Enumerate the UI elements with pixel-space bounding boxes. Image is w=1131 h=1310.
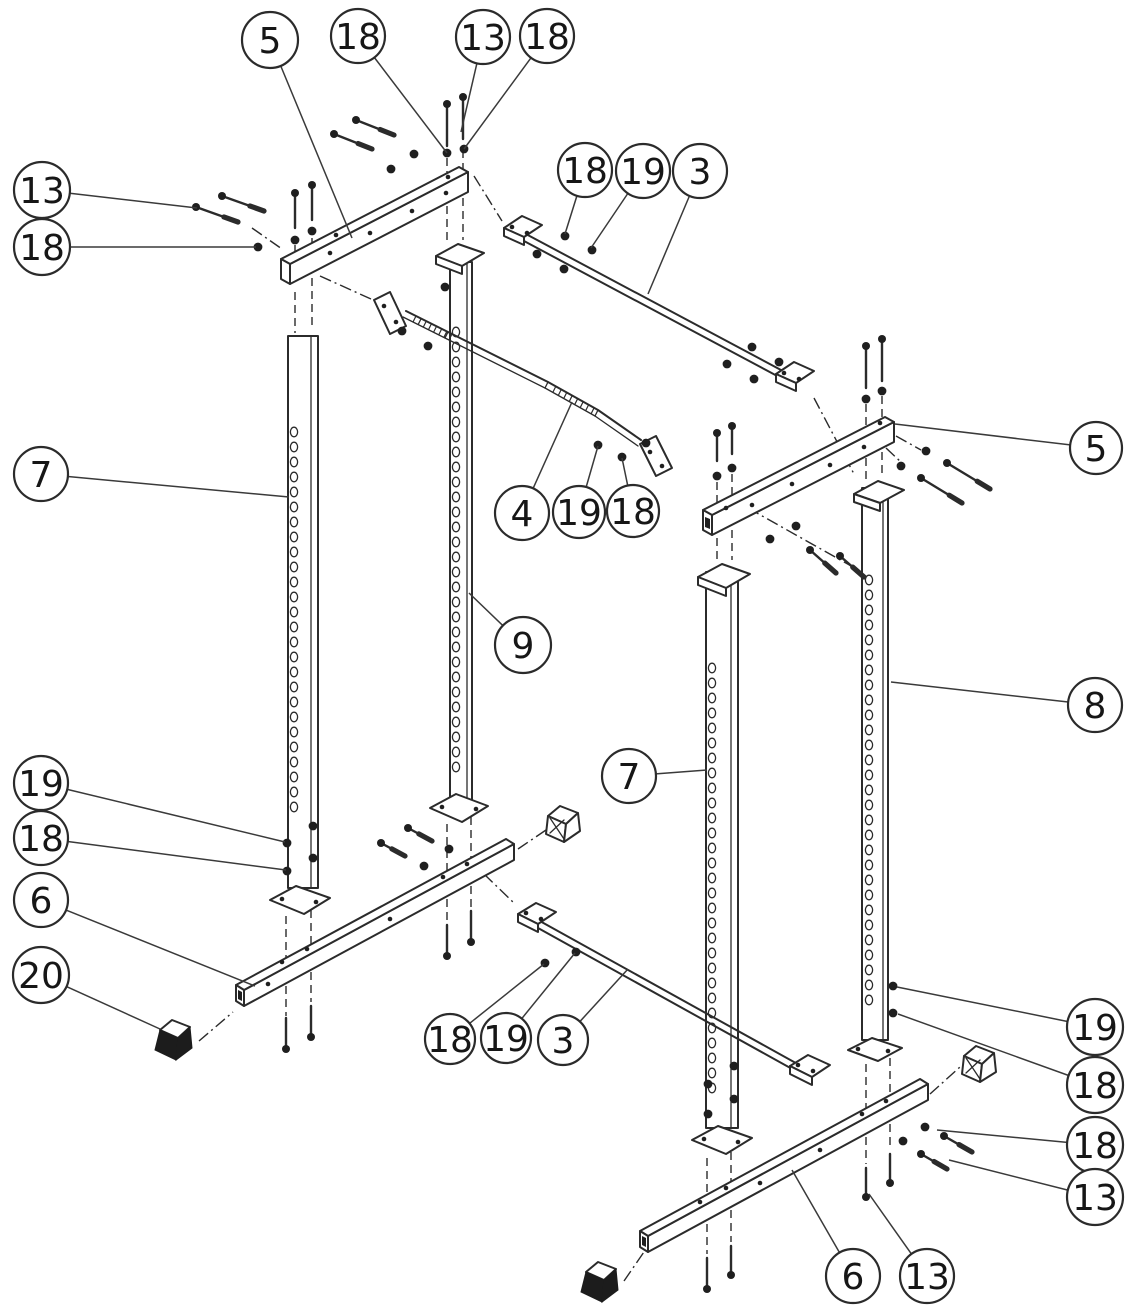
callout-number: 18	[562, 151, 608, 192]
callout-leader-line	[66, 910, 255, 986]
callout-13: 13	[949, 1160, 1123, 1225]
bolt-hole-dot	[648, 450, 653, 455]
callout-number: 13	[460, 18, 506, 59]
bolt-hole-dot	[702, 1137, 707, 1142]
bolt-hole-dot	[524, 911, 529, 916]
callout-leader-line	[281, 66, 352, 238]
callout-number: 5	[259, 21, 282, 62]
washer	[922, 447, 931, 456]
callout-18: 18	[14, 811, 286, 870]
axis-centerline	[624, 1249, 646, 1281]
callout-leader-line	[586, 446, 598, 487]
callout-18: 18	[14, 219, 256, 275]
bolt	[943, 459, 990, 489]
bolt-hole-dot	[410, 209, 415, 214]
bolt-hole-dot	[388, 917, 393, 922]
bolt-hole-dot	[280, 960, 285, 965]
callout-leader-line	[895, 424, 1070, 445]
washer	[878, 387, 887, 396]
washer	[309, 822, 318, 831]
callout-number: 5	[1085, 429, 1108, 470]
bolt	[330, 130, 372, 149]
washer	[899, 1137, 908, 1146]
callout-number: 19	[620, 152, 666, 193]
washer	[792, 522, 801, 531]
bolt-hole-dot	[811, 1069, 816, 1074]
foot-wedge-rear-right	[962, 1046, 996, 1082]
bolt-hole-dot	[474, 807, 479, 812]
axis-centerline	[886, 448, 902, 463]
callout-number: 13	[904, 1257, 950, 1298]
bolt	[806, 546, 836, 573]
bolt-hole-dot	[465, 862, 470, 867]
callout-number: 13	[1072, 1178, 1118, 1219]
callout-19: 19	[897, 987, 1123, 1055]
washer	[750, 375, 759, 384]
washer	[766, 535, 775, 544]
callout-number: 6	[842, 1257, 865, 1298]
bolt-hole-dot	[328, 251, 333, 256]
bolt-hole-dot	[660, 464, 665, 469]
bolt-hole-dot	[886, 1049, 891, 1054]
callout-number: 19	[483, 1019, 529, 1060]
washer	[560, 265, 569, 274]
bolt-hole-dot	[539, 917, 544, 922]
washer	[713, 472, 722, 481]
assembly-diagram-page: 5181318181931318574191898719186201819319…	[0, 0, 1131, 1310]
bolt	[727, 1246, 735, 1279]
callout-number: 19	[1072, 1008, 1118, 1049]
callout-7: 7	[602, 749, 707, 803]
callout-18: 18	[558, 143, 612, 234]
base-rail-left	[236, 839, 514, 1006]
axis-centerline	[474, 176, 502, 221]
axis-centerline	[896, 436, 921, 450]
bolt-hole-dot	[510, 225, 515, 230]
bolt	[728, 422, 736, 454]
callout-7: 7	[14, 447, 289, 501]
exploded-view-diagram: 5181318181931318574191898719186201819319…	[0, 0, 1131, 1310]
bolt-hole-dot	[750, 503, 755, 508]
bolt	[886, 1154, 894, 1187]
washer	[291, 236, 300, 245]
callout-number: 7	[618, 757, 641, 798]
callout-leader-line	[66, 987, 160, 1029]
washer	[398, 327, 407, 336]
bolt	[467, 911, 475, 946]
bolt	[218, 192, 264, 211]
callout-leader-line	[622, 458, 628, 486]
callout-number: 18	[335, 17, 381, 58]
callout-number: 6	[30, 881, 53, 922]
bolt-hole-dot	[862, 445, 867, 450]
washer	[889, 1009, 898, 1018]
callout-number: 18	[610, 492, 656, 533]
bolt-hole-dot	[878, 421, 883, 426]
bolt-hole-dot	[394, 320, 399, 325]
callout-leader-line	[937, 1130, 1067, 1142]
bolt	[917, 474, 962, 503]
bolt-hole-dot	[368, 231, 373, 236]
rear-top-crossbar	[504, 216, 814, 391]
callout-leader-line	[869, 1194, 911, 1254]
bolt	[878, 335, 886, 381]
bolt	[917, 1150, 947, 1169]
washer	[533, 250, 542, 259]
bolt-hole-dot	[444, 191, 449, 196]
bolt-hole-dot	[790, 482, 795, 487]
washer	[309, 854, 318, 863]
callout-leader-line	[464, 58, 531, 149]
bolt	[352, 116, 394, 135]
callout-leader-line	[533, 402, 572, 488]
washer	[642, 439, 651, 448]
washer	[704, 1080, 713, 1089]
bolt-hole-dot	[884, 1099, 889, 1104]
callout-leader-line	[68, 841, 286, 870]
post-hole-chains	[290, 327, 872, 1093]
bolt-hole-dot	[440, 805, 445, 810]
axis-centerline	[930, 1067, 960, 1094]
callout-leader-line	[469, 593, 503, 626]
bolt	[377, 839, 405, 856]
washer	[441, 283, 450, 292]
callout-leader-line	[374, 57, 447, 153]
callout-3: 3	[538, 969, 628, 1065]
foot-wedge-rear-left	[546, 806, 580, 842]
post-right-front	[692, 564, 752, 1154]
bolt	[459, 93, 467, 139]
bolt-hole-dot	[796, 1063, 801, 1068]
bolt-hole-dot	[314, 900, 319, 905]
callout-number: 13	[19, 171, 65, 212]
callout-leader-line	[648, 196, 689, 294]
pullup-bar	[374, 292, 672, 476]
bolt-hole-dot	[441, 875, 446, 880]
washer	[730, 1062, 739, 1071]
callout-9: 9	[469, 593, 551, 673]
callout-number: 9	[512, 626, 535, 667]
callout-number: 18	[524, 17, 570, 58]
callout-13: 13	[869, 1194, 954, 1303]
callout-number: 18	[1072, 1066, 1118, 1107]
bolt	[703, 1258, 711, 1293]
callout-number: 7	[30, 455, 53, 496]
bolt-hole-dot	[782, 371, 787, 376]
callout-leader-line	[656, 770, 707, 774]
post-left-front	[270, 336, 330, 914]
axis-centerline	[320, 276, 371, 299]
washer	[889, 982, 898, 991]
washer	[704, 1110, 713, 1119]
washer	[410, 150, 419, 159]
bolt	[443, 100, 451, 146]
washer	[387, 165, 396, 174]
callout-number: 3	[689, 152, 712, 193]
callout-leader-line	[70, 193, 197, 208]
washer	[308, 227, 317, 236]
washer	[728, 464, 737, 473]
callout-number: 18	[19, 228, 65, 269]
washer	[862, 395, 871, 404]
bolt-hole-dot	[724, 506, 729, 511]
callout-number: 19	[556, 493, 602, 534]
callout-number: 3	[552, 1021, 575, 1062]
bolt-hole-dot	[860, 1112, 865, 1117]
axis-centerline	[748, 508, 860, 571]
base-rail-right	[640, 1079, 928, 1252]
washer	[723, 360, 732, 369]
callout-leader-line	[897, 987, 1068, 1021]
bolt	[443, 925, 451, 960]
bolt	[282, 1018, 290, 1053]
foot-wedge-front-right	[581, 1262, 618, 1302]
callout-20: 20	[13, 947, 160, 1029]
hardware-washers	[254, 145, 931, 1146]
bolt-hole-dot	[724, 1186, 729, 1191]
washer	[283, 839, 292, 848]
bolt-hole-dot	[758, 1181, 763, 1186]
callout-leader-line	[580, 969, 628, 1022]
callout-number: 18	[1072, 1126, 1118, 1167]
washer	[775, 358, 784, 367]
washer	[445, 845, 454, 854]
callout-leader-line	[891, 682, 1068, 702]
callout-number: 20	[18, 956, 64, 997]
callout-18: 18	[607, 458, 659, 537]
callouts-layer: 5181318181931318574191898719186201819319…	[13, 9, 1123, 1303]
bolt	[862, 342, 870, 388]
washer	[921, 1123, 930, 1132]
callout-number: 18	[18, 819, 64, 860]
callout-number: 8	[1084, 686, 1107, 727]
bolt-hole-dot	[280, 897, 285, 902]
callout-leader-line	[792, 1170, 840, 1253]
bolt	[713, 429, 721, 461]
callout-number: 19	[18, 764, 64, 805]
callout-leader-line	[949, 1160, 1068, 1190]
bolt-hole-dot	[305, 947, 310, 952]
washer	[283, 867, 292, 876]
bolt-hole-dot	[698, 1200, 703, 1205]
bolt	[192, 203, 238, 222]
washer	[897, 462, 906, 471]
callout-leader-line	[68, 476, 289, 497]
bolt	[307, 1006, 315, 1041]
axis-centerline	[484, 874, 515, 904]
callout-leader-line	[565, 196, 577, 234]
bolt-hole-dot	[828, 463, 833, 468]
bolt	[291, 189, 299, 228]
bolt-hole-dot	[334, 233, 339, 238]
bolt-hole-dot	[446, 175, 451, 180]
bolt-hole-dot	[525, 231, 530, 236]
washer	[748, 343, 757, 352]
bolt-hole-dot	[266, 982, 271, 987]
bolt-hole-dot	[382, 304, 387, 309]
washer	[420, 862, 429, 871]
knurl-grip-texture	[413, 316, 594, 414]
bolt-hole-dot	[797, 377, 802, 382]
callout-number: 18	[427, 1020, 473, 1061]
bolt-hole-dot	[736, 1140, 741, 1145]
axis-centerline	[199, 1012, 233, 1041]
bolt	[404, 824, 432, 841]
bolt	[308, 181, 316, 220]
callout-8: 8	[891, 678, 1122, 732]
callout-leader-line	[67, 789, 285, 842]
callout-number: 4	[511, 494, 534, 535]
callout-leader-line	[591, 193, 628, 248]
axis-centerline	[518, 830, 546, 849]
callout-13: 13	[14, 162, 197, 218]
bolt-hole-dot	[856, 1047, 861, 1052]
washer	[730, 1095, 739, 1104]
bolt	[836, 552, 864, 577]
washer	[424, 342, 433, 351]
bolt-hole-dot	[818, 1148, 823, 1153]
callout-19: 19	[553, 446, 605, 538]
bolt	[940, 1132, 972, 1152]
bolt	[862, 1168, 870, 1201]
foot-wedge-front-left	[155, 1020, 192, 1060]
